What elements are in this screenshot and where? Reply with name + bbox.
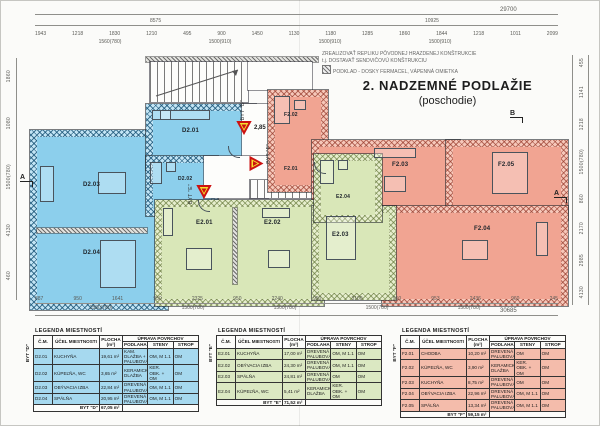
cell-room-area: 10,20 m² [467, 348, 490, 360]
dim-value: 1218 [473, 31, 484, 37]
cell-walls: KER. OBK. + OM [515, 360, 540, 377]
triangle-icon [236, 120, 252, 135]
cell-ceiling: OM [540, 388, 565, 400]
vestibule [248, 62, 312, 90]
legend-group-label: BYT "E" [208, 344, 213, 362]
cell-room-name: OBÝVACIA IZBA [420, 388, 467, 400]
dim-value: 495 [183, 31, 191, 37]
furniture-sofa [40, 166, 54, 202]
dim-value: 1450 [252, 31, 263, 37]
room-label-f203: F2.03 [392, 162, 408, 168]
byt-d-label: BYT "D" [240, 100, 246, 120]
dim-value: 900 [217, 31, 225, 37]
cell-room-area: 17,00 m² [283, 348, 306, 360]
cell-ceiling: OM [540, 348, 565, 360]
dim-value: 2240 [272, 296, 283, 302]
dim-value: 1500(910) [209, 39, 232, 45]
dim-value: 887 [35, 296, 43, 302]
furniture-table [186, 248, 212, 270]
cell-walls: KER. OBK. + OM [148, 365, 173, 382]
dim-top-overall: 29700 [500, 7, 517, 13]
dim-value: 2170 [579, 222, 585, 234]
dim-value: 1500(910) [319, 39, 342, 45]
dim-value: 4130 [579, 286, 585, 298]
cell-floor: DREVENÁ PALUBOVÁ [490, 400, 515, 412]
cell-room-id: D2.03 [34, 382, 53, 394]
note-line-3: PODKLAD - DOSKY FERMACEL, VÁPENNÁ OMIETK… [322, 65, 502, 76]
cell-walls: OM, M 1.1 [148, 348, 173, 365]
cell-ceiling: OM [173, 365, 198, 382]
room-label-f202: F2.02 [284, 112, 298, 118]
cell-floor: KAM. DLAŽBA + PALUBOVÁ [123, 348, 148, 365]
triangle-icon [249, 156, 264, 172]
legend-title: LEGENDA MIESTNOSTÍ [35, 328, 199, 334]
dim-value: 1844 [436, 31, 447, 37]
dim-chain-left: 186010801500(780)4130460 [3, 70, 15, 280]
dim-value: 1218 [72, 31, 83, 37]
cell-room-id: E2.04 [217, 383, 236, 400]
hatch-legend-icon [322, 65, 331, 74]
dim-value: 2325 [192, 296, 203, 302]
furniture-wc [294, 100, 306, 110]
cell-ceiling: OM [356, 348, 381, 360]
dim-value: 1011 [510, 31, 521, 37]
furniture-kitchen-counter [163, 208, 173, 236]
dim-value: 1210 [146, 31, 157, 37]
cell-floor: DREVENÁ PALUBOVÁ [490, 376, 515, 388]
cell-floor: KERAMICKÁ DLAŽBA [306, 383, 331, 400]
dim-value: 1500(780) [274, 305, 297, 311]
cell-room-id: E2.03 [217, 371, 236, 383]
cell-floor: DREVENÁ PALUBOVÁ [123, 382, 148, 394]
dim-value: 950 [153, 296, 161, 302]
legend-total-area: 59,15 m² [467, 411, 490, 417]
legend-total-label: BYT "E" [217, 400, 283, 406]
furniture-bathtub [150, 162, 162, 184]
entrance-marker-byt-d [236, 120, 252, 135]
legend-row: D2.04 SPÁLŇA 20,95 m² DREVENÁ PALUBOVÁ O… [34, 393, 199, 405]
cell-ceiling: OM [540, 360, 565, 377]
cell-floor: DREVENÁ PALUBOVÁ [306, 360, 331, 372]
col-header-area: PLOCHA (m²) [467, 336, 490, 349]
dim-top-right-span: 10925 [425, 18, 439, 24]
dim-line-bottom-overall [35, 315, 558, 316]
cell-room-name: KUCHYŇA [420, 376, 467, 388]
byt-e-label: BYT "E" [188, 184, 194, 204]
cell-ceiling: OM [173, 348, 198, 365]
cell-walls: OM [515, 348, 540, 360]
col-header-floor: PODLAHA [306, 342, 331, 348]
apartment-e-main-wing [155, 200, 324, 306]
legend-total-label: BYT "D" [34, 405, 100, 411]
furniture-kitchen-counter [374, 148, 416, 158]
legend-row: E2.01 KUCHYŇA 17,00 m² DREVENÁ PALUBOVÁ … [217, 348, 382, 360]
entrance-marker-byt-e [196, 184, 212, 199]
cell-room-id: F2.01 [401, 348, 420, 360]
cell-room-id: F2.03 [401, 376, 420, 388]
cell-room-area: 3,65 m² [100, 365, 123, 382]
cell-floor: DREVENÁ PALUBOVÁ [490, 348, 515, 360]
dim-value: 1560(780) [99, 39, 122, 45]
furniture-sink [160, 110, 171, 120]
col-header-floor: PODLAHA [490, 342, 515, 348]
cell-room-area: 19,61 m² [100, 348, 123, 365]
col-header-floor: PODLAHA [123, 342, 148, 348]
cell-room-id: D2.04 [34, 393, 53, 405]
cell-room-id: F2.04 [401, 388, 420, 400]
furniture-table [98, 172, 126, 194]
dim-value: 460 [6, 271, 12, 280]
cell-room-id: E2.02 [217, 360, 236, 372]
cell-ceiling: OM [356, 360, 381, 372]
note-line-1: ZREALIZOVAŤ REPLIKU PÔVODNEJ HRAZDENEJ K… [322, 51, 502, 58]
cell-room-id: D2.01 [34, 348, 53, 365]
legend-row: F2.02 KÚPEĽŇA, WC 3,90 m² KERAMICKÁ DLAŽ… [401, 360, 566, 377]
cell-room-name: KUCHYŇA [236, 348, 283, 360]
col-header-area: PLOCHA (m²) [283, 336, 306, 349]
dim-value: 960 [511, 296, 519, 302]
legend-total-area: 67,05 m² [100, 405, 123, 411]
dim-value: 1180 [325, 31, 336, 37]
wall-d203-d204 [37, 228, 147, 233]
legend-row: E2.02 OBÝVACIA IZBA 24,30 m² DREVENÁ PAL… [217, 360, 382, 372]
stair-direction-arrow [150, 62, 248, 102]
cell-walls: OM, M 1.1 [331, 348, 356, 360]
dim-value: 950 [74, 296, 82, 302]
cell-walls: OM, M 1.1 [148, 393, 173, 405]
dim-chain-top-sub: 1560(780)1500(910)1500(910)1500(910) [55, 39, 495, 45]
dim-line-top-overall [35, 14, 558, 15]
cell-room-area: 22,96 m² [467, 388, 490, 400]
section-marker-a-left: A [20, 174, 33, 187]
dim-chain-top: 1943121818301210495900145011301180128518… [35, 31, 558, 37]
dim-value: 950 [313, 296, 321, 302]
room-label-f205: F2.05 [498, 162, 514, 168]
furniture-table [268, 250, 290, 268]
col-header-name: ÚČEL MIESTNOSTI [236, 336, 283, 349]
cell-walls: OM, M 1.1 [515, 400, 540, 412]
dim-chain-bottom: 8879501641950232595022409503100950953243… [35, 296, 558, 302]
cell-floor: DREVENÁ PALUBOVÁ [306, 348, 331, 360]
furniture-bathtub [274, 96, 290, 124]
dim-value: 2436 [470, 296, 481, 302]
legend-table-byt-d: LEGENDA MIESTNOSTÍ BYT "D" Č.M. ÚČEL MIE… [33, 328, 199, 412]
legend-total-area: 71,52 m² [283, 400, 306, 406]
room-label-d204: D2.04 [83, 250, 100, 256]
wall-e201-e202 [233, 208, 237, 284]
byt-f-label: BYT "F" [266, 144, 272, 164]
room-label-f201: F2.01 [284, 166, 298, 172]
cell-room-id: F2.05 [401, 400, 420, 412]
col-header-cm: Č.M. [34, 336, 53, 349]
dim-value: 1500(780) [182, 305, 205, 311]
furniture-wc [166, 162, 176, 172]
elevation-label: 2,85 [254, 125, 266, 131]
cell-ceiling: OM [356, 371, 381, 383]
cell-room-area: 24,81 m² [283, 371, 306, 383]
dim-value: 1860 [399, 31, 410, 37]
cell-room-area: 8,75 m² [467, 376, 490, 388]
cell-room-name: SPÁLŇA [53, 393, 100, 405]
dim-line-left [16, 58, 17, 300]
room-label-f204: F2.04 [474, 226, 490, 232]
cell-room-name: SPÁLŇA [236, 371, 283, 383]
cell-ceiling: OM [540, 400, 565, 412]
legend-row: F2.03 KUCHYŇA 8,75 m² DREVENÁ PALUBOVÁ O… [401, 376, 566, 388]
cell-room-area: 22,84 m² [100, 382, 123, 394]
furniture-sofa [536, 222, 548, 256]
dim-bottom-overall: 30685 [500, 308, 517, 314]
construction-notes: ZREALIZOVAŤ REPLIKU PÔVODNEJ HRAZDENEJ K… [322, 51, 502, 75]
col-header-cm: Č.M. [217, 336, 236, 349]
note-line-2: t.j. DOSTAVAŤ SENDVIČOVÚ KONŠTRUKCIU [322, 58, 502, 65]
room-label-e203: E2.03 [332, 232, 349, 238]
cell-room-name: KÚPEĽŇA, WC [53, 365, 100, 382]
cell-room-name: KÚPEĽŇA, WC [420, 360, 467, 377]
cell-walls: KER. OBK. + OM [331, 383, 356, 400]
furniture-wc [338, 160, 348, 170]
dim-value: 2985 [579, 254, 585, 266]
legend-table-byt-e: LEGENDA MIESTNOSTÍ BYT "E" Č.M. ÚČEL MIE… [216, 328, 382, 406]
cell-room-name: KUCHYŇA [53, 348, 100, 365]
cell-room-area: 5,41 m² [283, 383, 306, 400]
cell-room-id: F2.02 [401, 360, 420, 377]
room-label-d202: D2.02 [178, 176, 192, 182]
furniture-bed [492, 152, 528, 194]
dim-value: 950 [393, 296, 401, 302]
title-line-2: (poschodie) [350, 95, 545, 107]
legend-row: D2.01 KUCHYŇA 19,61 m² KAM. DLAŽBA + PAL… [34, 348, 199, 365]
dim-value: 1860 [6, 70, 12, 82]
legend-group-label: BYT "F" [392, 344, 397, 362]
section-marker-b: B [510, 110, 523, 123]
legend-title: LEGENDA MIESTNOSTÍ [218, 328, 382, 334]
cell-room-area: 24,30 m² [283, 360, 306, 372]
dim-line-right [572, 55, 573, 305]
dim-value: 1080 [6, 117, 12, 129]
dim-value: 1500(910) [429, 39, 452, 45]
room-label-d201: D2.01 [182, 128, 199, 134]
dim-value: 4130 [6, 224, 12, 236]
legend-row: E2.03 SPÁLŇA 24,81 m² DREVENÁ PALUBOVÁ O… [217, 371, 382, 383]
col-header-name: ÚČEL MIESTNOSTI [420, 336, 467, 349]
dim-line-bottom [35, 303, 558, 304]
furniture-table [462, 240, 488, 260]
room-label-e201: E2.01 [196, 220, 213, 226]
cell-walls: OM [515, 376, 540, 388]
cell-ceiling: OM [540, 376, 565, 388]
furniture-bed [100, 240, 136, 288]
cell-walls: OM, M 1.1 [515, 388, 540, 400]
legend-row: D2.03 OBÝVACIA IZBA 22,84 m² DREVENÁ PAL… [34, 382, 199, 394]
dim-value: 950 [233, 296, 241, 302]
dim-value: 1641 [112, 296, 123, 302]
cell-room-area: 20,95 m² [100, 393, 123, 405]
cell-room-name: OBÝVACIA IZBA [53, 382, 100, 394]
dim-value: 1285 [362, 31, 373, 37]
cell-room-id: D2.02 [34, 365, 53, 382]
dim-value: 1500(780) [366, 305, 389, 311]
dim-value: 1500(780) [458, 305, 481, 311]
cell-walls: OM, M 1.1 [148, 382, 173, 394]
staircase-top [150, 62, 248, 102]
room-label-e202: E2.02 [264, 220, 281, 226]
furniture-table [384, 176, 406, 192]
cell-walls: OM [331, 371, 356, 383]
legend-total-label: BYT "F" [401, 411, 467, 417]
dim-value: 1141 [579, 86, 585, 98]
cell-floor: DREVENÁ PALUBOVÁ [123, 393, 148, 405]
legend-title: LEGENDA MIESTNOSTÍ [402, 328, 566, 334]
cell-room-id: E2.01 [217, 348, 236, 360]
dim-value: 2099 [547, 31, 558, 37]
cell-walls: OM, M 1.1 [331, 360, 356, 372]
dim-value: 3100 [351, 296, 362, 302]
section-marker-a-right: A [554, 190, 567, 203]
legend-row: D2.02 KÚPEĽŇA, WC 3,65 m² KERAMICKÁ DLAŽ… [34, 365, 199, 382]
room-label-e204: E2.04 [336, 194, 350, 200]
dim-chain-right: 455114112181500(780)860217029854130 [576, 58, 588, 298]
dim-line-right-2 [588, 55, 589, 305]
cell-room-area: 3,90 m² [467, 360, 490, 377]
cell-ceiling: OM [356, 383, 381, 400]
cell-room-name: OBÝVACIA IZBA [236, 360, 283, 372]
dim-chain-bottom-sub: 1580(780)1500(780)1500(780)1500(780)1500… [55, 305, 515, 311]
legend-group-label: BYT "D" [25, 344, 30, 362]
legend-row: F2.04 OBÝVACIA IZBA 22,96 m² DREVENÁ PAL… [401, 388, 566, 400]
dim-top-left-span: 8575 [150, 18, 161, 24]
entrance-marker-byt-f [249, 156, 264, 172]
dim-value: 1580(780) [90, 305, 113, 311]
cell-floor: DREVENÁ PALUBOVÁ [490, 388, 515, 400]
dim-value: 1218 [579, 118, 585, 130]
dim-value: 953 [431, 296, 439, 302]
furniture-wardrobe [262, 208, 290, 218]
room-label-d203: D2.03 [83, 182, 100, 188]
legend-row: F2.01 CHODBA 10,20 m² DREVENÁ PALUBOVÁ O… [401, 348, 566, 360]
cell-room-name: SPÁLŇA [420, 400, 467, 412]
cell-room-area: 13,34 m² [467, 400, 490, 412]
legend-row: F2.05 SPÁLŇA 13,34 m² DREVENÁ PALUBOVÁ O… [401, 400, 566, 412]
dim-value: 455 [579, 58, 585, 67]
col-header-cm: Č.M. [401, 336, 420, 349]
furniture-bed [326, 216, 356, 260]
cell-floor: KERAMICKÁ DLAŽBA [123, 365, 148, 382]
drawing-sheet: 29700 8575 10925 19431218183012104959001… [0, 0, 600, 426]
title-line-1: 2. NADZEMNÉ PODLAŽIE [350, 78, 545, 93]
dim-value: 1130 [289, 31, 300, 37]
cell-room-name: KÚPEĽŇA, WC [236, 383, 283, 400]
dim-value: 1943 [35, 31, 46, 37]
cell-room-name: CHODBA [420, 348, 467, 360]
dim-value: 860 [579, 194, 585, 203]
legend-table-byt-f: LEGENDA MIESTNOSTÍ BYT "F" Č.M. ÚČEL MIE… [400, 328, 566, 418]
dim-line-top-spans [35, 25, 558, 26]
dim-value: 1830 [109, 31, 120, 37]
drawing-title: 2. NADZEMNÉ PODLAŽIE (poschodie) [350, 78, 545, 107]
triangle-icon [196, 184, 212, 199]
cell-ceiling: OM [173, 393, 198, 405]
cell-floor: DREVENÁ PALUBOVÁ [306, 371, 331, 383]
dim-value: 1500(780) [579, 149, 585, 175]
legend-row: E2.04 KÚPEĽŇA, WC 5,41 m² KERAMICKÁ DLAŽ… [217, 383, 382, 400]
cell-ceiling: OM [173, 382, 198, 394]
dim-value: 1500(780) [6, 164, 12, 190]
cell-floor: KERAMICKÁ DLAŽBA [490, 360, 515, 377]
dim-value: 245 [550, 296, 558, 302]
col-header-name: ÚČEL MIESTNOSTI [53, 336, 100, 349]
col-header-area: PLOCHA (m²) [100, 336, 123, 349]
